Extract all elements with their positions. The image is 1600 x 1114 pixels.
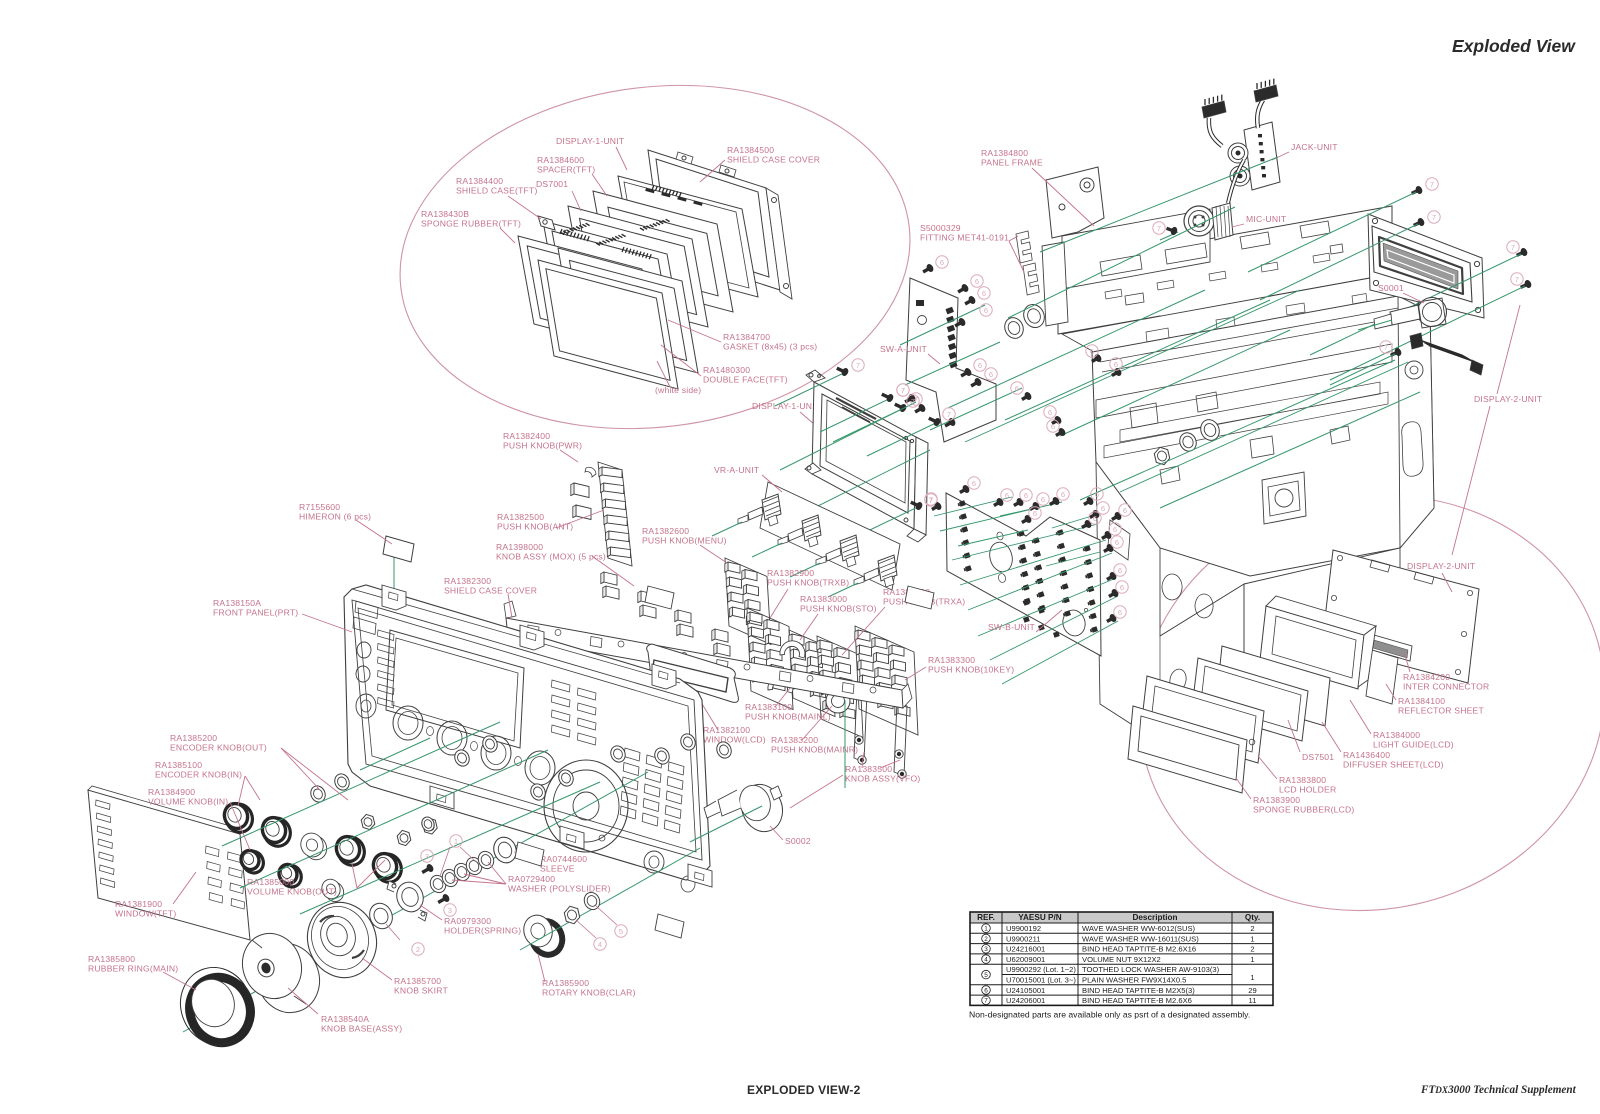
svg-text:6: 6: [972, 479, 976, 488]
svg-text:ROTARY KNOB(CLAR): ROTARY KNOB(CLAR): [542, 988, 636, 998]
svg-text:HIMERON (6 pcs): HIMERON (6 pcs): [299, 512, 371, 522]
svg-text:RA1383900: RA1383900: [1253, 795, 1300, 805]
svg-text:6: 6: [1051, 422, 1055, 431]
svg-text:RA138430B: RA138430B: [421, 209, 469, 219]
svg-text:7: 7: [1432, 213, 1436, 222]
svg-text:FRONT PANEL(PRT): FRONT PANEL(PRT): [213, 608, 298, 618]
svg-text:3: 3: [448, 906, 452, 915]
svg-text:R7155600: R7155600: [299, 502, 340, 512]
svg-text:5: 5: [984, 972, 988, 979]
svg-text:RA1384100: RA1384100: [1398, 696, 1445, 706]
svg-text:7: 7: [1157, 224, 1161, 233]
svg-text:VOLUME NUT 9X12X2: VOLUME NUT 9X12X2: [1082, 955, 1161, 964]
svg-text:U9900292 (Lot. 1~2): U9900292 (Lot. 1~2): [1006, 965, 1076, 974]
svg-text:WAVE WASHER WW-16011(SUS): WAVE WASHER WW-16011(SUS): [1082, 934, 1199, 943]
svg-text:WINDOW(TFT): WINDOW(TFT): [115, 909, 176, 919]
svg-text:RA0979300: RA0979300: [444, 916, 491, 926]
svg-text:6: 6: [975, 277, 979, 286]
svg-text:FTDX3000 Technical Supplement: FTDX3000 Technical Supplement: [1420, 1084, 1577, 1096]
svg-text:DOUBLE FACE(TFT): DOUBLE FACE(TFT): [703, 375, 788, 385]
svg-text:7: 7: [911, 397, 915, 406]
svg-text:RA1382600: RA1382600: [642, 526, 689, 536]
svg-text:U24105001: U24105001: [1006, 986, 1045, 995]
svg-text:6: 6: [1118, 608, 1122, 617]
svg-text:RA138540A: RA138540A: [321, 1014, 369, 1024]
svg-text:HOLDER(SPRING): HOLDER(SPRING): [444, 926, 521, 936]
svg-text:2: 2: [1250, 945, 1254, 954]
svg-text:29: 29: [1248, 986, 1256, 995]
svg-text:RA0729400: RA0729400: [508, 874, 555, 884]
svg-text:PUSH KNOB(PWR): PUSH KNOB(PWR): [503, 441, 582, 451]
svg-text:2: 2: [416, 945, 420, 954]
svg-text:1: 1: [984, 926, 988, 933]
svg-text:3: 3: [425, 852, 429, 861]
svg-text:4: 4: [984, 957, 988, 964]
svg-text:U9900211: U9900211: [1006, 934, 1040, 943]
svg-text:BIND HEAD TAPTITE-B M2.6X16: BIND HEAD TAPTITE-B M2.6X16: [1082, 945, 1196, 954]
svg-text:7: 7: [1384, 343, 1388, 352]
svg-text:U9900192: U9900192: [1006, 924, 1041, 933]
svg-text:EXPLODED VIEW-2: EXPLODED VIEW-2: [747, 1083, 861, 1097]
svg-text:DS7501: DS7501: [1302, 752, 1334, 762]
svg-text:FITTING MET41-0191: FITTING MET41-0191: [920, 233, 1009, 243]
svg-text:MIC-UNIT: MIC-UNIT: [1246, 214, 1287, 224]
svg-text:S0001: S0001: [1378, 283, 1404, 293]
svg-text:(white side): (white side): [655, 385, 701, 395]
svg-text:U24216001: U24216001: [1006, 945, 1045, 954]
svg-text:ENCODER KNOB(IN): ENCODER KNOB(IN): [155, 770, 242, 780]
svg-text:RA1381900: RA1381900: [115, 899, 162, 909]
svg-text:RUBBER RING(MAIN): RUBBER RING(MAIN): [88, 964, 178, 974]
svg-text:6: 6: [1113, 525, 1117, 534]
svg-text:KNOB ASSY (MOX) (5 pcs): KNOB ASSY (MOX) (5 pcs): [496, 552, 606, 562]
svg-text:1: 1: [1250, 973, 1254, 982]
svg-text:VOLUME KNOB(IN): VOLUME KNOB(IN): [148, 797, 228, 807]
svg-text:REFLECTOR SHEET: REFLECTOR SHEET: [1398, 706, 1484, 716]
svg-text:TOOTHED LOCK WASHER AW-9103(3): TOOTHED LOCK WASHER AW-9103(3): [1082, 965, 1220, 974]
svg-text:SHIELD CASE COVER: SHIELD CASE COVER: [444, 586, 537, 596]
svg-text:7: 7: [1515, 275, 1519, 284]
svg-text:LCD HOLDER: LCD HOLDER: [1279, 785, 1336, 795]
svg-text:7: 7: [901, 386, 905, 395]
svg-text:RA1384500: RA1384500: [727, 145, 774, 155]
svg-text:VR-A-UNIT: VR-A-UNIT: [714, 465, 760, 475]
svg-text:3: 3: [984, 946, 988, 953]
svg-text:6: 6: [1118, 566, 1122, 575]
svg-text:RA1383800: RA1383800: [1279, 775, 1326, 785]
svg-text:JACK-UNIT: JACK-UNIT: [1291, 142, 1338, 152]
svg-text:6: 6: [1090, 347, 1094, 356]
svg-text:RA1480300: RA1480300: [703, 365, 750, 375]
svg-text:SW-A-UNIT: SW-A-UNIT: [880, 344, 928, 354]
svg-text:RA1436400: RA1436400: [1343, 750, 1390, 760]
svg-text:GASKET (8x45) (3 pcs): GASKET (8x45) (3 pcs): [723, 342, 817, 352]
svg-text:DISPLAY-1-UNIT: DISPLAY-1-UNIT: [556, 136, 625, 146]
svg-text:Exploded View: Exploded View: [1452, 36, 1576, 56]
svg-text:Qty.: Qty.: [1245, 913, 1260, 922]
svg-text:6: 6: [1015, 384, 1019, 393]
svg-text:BIND HEAD TAPTITE-B M2.6X6: BIND HEAD TAPTITE-B M2.6X6: [1082, 996, 1192, 1005]
svg-text:6: 6: [982, 289, 986, 298]
svg-text:RA1384700: RA1384700: [723, 332, 770, 342]
svg-text:6: 6: [1115, 538, 1119, 547]
svg-text:6: 6: [1024, 491, 1028, 500]
svg-text:6: 6: [1048, 408, 1052, 417]
svg-text:RA0744600: RA0744600: [540, 854, 587, 864]
svg-text:U24206001: U24206001: [1006, 996, 1045, 1005]
svg-text:RA1382100: RA1382100: [703, 725, 750, 735]
svg-text:6: 6: [984, 306, 988, 315]
svg-text:6: 6: [989, 370, 993, 379]
svg-text:6: 6: [1095, 490, 1099, 499]
svg-text:6: 6: [984, 987, 988, 994]
svg-text:KNOB ASSY(VFO): KNOB ASSY(VFO): [845, 774, 920, 784]
svg-text:BIND HEAD TAPTITE-B M2X5(3): BIND HEAD TAPTITE-B M2X5(3): [1082, 986, 1195, 995]
svg-text:DISPLAY-2-UNIT: DISPLAY-2-UNIT: [1407, 561, 1476, 571]
svg-text:SPONGE RUBBER(LCD): SPONGE RUBBER(LCD): [1253, 805, 1355, 815]
svg-text:DISPLAY-2-UNIT: DISPLAY-2-UNIT: [1474, 394, 1543, 404]
svg-text:6: 6: [1033, 509, 1037, 518]
svg-text:6: 6: [1114, 360, 1118, 369]
svg-text:RA138150A: RA138150A: [213, 598, 261, 608]
svg-text:7: 7: [929, 495, 933, 504]
svg-text:6: 6: [978, 361, 982, 370]
svg-text:DS7001: DS7001: [536, 179, 568, 189]
svg-text:SHIELD CASE(TFT): SHIELD CASE(TFT): [456, 186, 538, 196]
svg-text:WASHER (POLYSLIDER): WASHER (POLYSLIDER): [508, 884, 611, 894]
svg-text:U62009001: U62009001: [1006, 955, 1045, 964]
svg-text:RA1383100: RA1383100: [745, 702, 792, 712]
svg-text:SPONGE RUBBER(TFT): SPONGE RUBBER(TFT): [421, 219, 521, 229]
svg-text:PUSH KNOB(10KEY): PUSH KNOB(10KEY): [928, 665, 1014, 675]
svg-text:KNOB BASE(ASSY): KNOB BASE(ASSY): [321, 1024, 402, 1034]
svg-text:2: 2: [984, 936, 988, 943]
svg-text:6: 6: [1120, 583, 1124, 592]
svg-text:PLAIN WASHER FW9X14X0.5: PLAIN WASHER FW9X14X0.5: [1082, 976, 1186, 985]
svg-text:7: 7: [947, 410, 951, 419]
svg-text:PUSH KNOB(ANT): PUSH KNOB(ANT): [497, 522, 573, 532]
svg-text:LIGHT GUIDE(LCD): LIGHT GUIDE(LCD): [1373, 740, 1454, 750]
svg-text:PUSH KNOB(MENU): PUSH KNOB(MENU): [642, 536, 727, 546]
svg-text:11: 11: [1249, 996, 1257, 1005]
svg-text:Description: Description: [1132, 913, 1177, 922]
svg-text:PUSH KNOB(TRXB): PUSH KNOB(TRXB): [767, 578, 849, 588]
svg-text:6: 6: [1041, 495, 1045, 504]
svg-text:S5000329: S5000329: [920, 223, 961, 233]
svg-text:RA1382500: RA1382500: [497, 512, 544, 522]
svg-text:PUSH KNOB(STO): PUSH KNOB(STO): [800, 604, 877, 614]
svg-text:YAESU P/N: YAESU P/N: [1018, 913, 1061, 922]
svg-text:7: 7: [984, 998, 988, 1005]
svg-text:PANEL FRAME: PANEL FRAME: [981, 158, 1043, 168]
svg-text:ENCODER KNOB(OUT): ENCODER KNOB(OUT): [170, 743, 267, 753]
svg-text:6: 6: [1101, 504, 1105, 513]
svg-text:SPACER(TFT): SPACER(TFT): [537, 165, 595, 175]
svg-text:DISPLAY-1-UNIT: DISPLAY-1-UNIT: [752, 401, 821, 411]
svg-text:RA1384900: RA1384900: [148, 787, 195, 797]
svg-text:1: 1: [1250, 955, 1254, 964]
svg-text:RA1398000: RA1398000: [496, 542, 543, 552]
svg-text:RA1382900: RA1382900: [767, 568, 814, 578]
svg-text:2: 2: [1250, 924, 1254, 933]
svg-text:RA1384200: RA1384200: [1403, 672, 1450, 682]
svg-text:RA1382300: RA1382300: [444, 576, 491, 586]
svg-text:KNOB SKIRT: KNOB SKIRT: [394, 986, 448, 996]
svg-text:S0002: S0002: [785, 836, 811, 846]
svg-text:SHIELD CASE COVER: SHIELD CASE COVER: [727, 155, 820, 165]
svg-text:7: 7: [856, 361, 860, 370]
svg-text:RA1384400: RA1384400: [456, 176, 503, 186]
svg-text:6: 6: [940, 258, 944, 267]
svg-text:PUSH KNOB(MAINL): PUSH KNOB(MAINL): [745, 712, 831, 722]
svg-text:RA1382400: RA1382400: [503, 431, 550, 441]
svg-text:WAVE WASHER WW-6012(SUS): WAVE WASHER WW-6012(SUS): [1082, 924, 1196, 933]
svg-text:VOLUME KNOB(OUT): VOLUME KNOB(OUT): [247, 887, 337, 897]
svg-text:5: 5: [619, 927, 623, 936]
svg-text:RA1385900: RA1385900: [542, 978, 589, 988]
svg-text:SLEEVE: SLEEVE: [540, 864, 575, 874]
svg-text:RA1385800: RA1385800: [88, 954, 135, 964]
svg-text:RA1385200: RA1385200: [170, 733, 217, 743]
svg-text:RA1385000: RA1385000: [247, 877, 294, 887]
svg-text:6: 6: [1061, 490, 1065, 499]
svg-text:U70015001 (Lot. 3~): U70015001 (Lot. 3~): [1006, 976, 1076, 985]
svg-text:7: 7: [1511, 243, 1515, 252]
svg-text:DIFFUSER SHEET(LCD): DIFFUSER SHEET(LCD): [1343, 760, 1444, 770]
svg-text:RA1383200: RA1383200: [771, 735, 818, 745]
svg-text:RA1383000: RA1383000: [800, 594, 847, 604]
svg-text:RA1384600: RA1384600: [537, 155, 584, 165]
svg-text:RA1385700: RA1385700: [394, 976, 441, 986]
svg-text:REF.: REF.: [977, 913, 995, 922]
svg-text:4: 4: [598, 940, 602, 949]
svg-text:1: 1: [454, 837, 458, 846]
svg-text:6: 6: [1005, 491, 1009, 500]
svg-text:RA1383300: RA1383300: [928, 655, 975, 665]
svg-text:INTER CONNECTOR: INTER CONNECTOR: [1403, 682, 1489, 692]
svg-text:RA1385100: RA1385100: [155, 760, 202, 770]
svg-text:WINDOW(LCD): WINDOW(LCD): [703, 735, 766, 745]
svg-text:1: 1: [1250, 934, 1254, 943]
svg-text:Non-designated parts are avail: Non-designated parts are available only …: [969, 1009, 1250, 1019]
svg-text:7: 7: [1430, 180, 1434, 189]
svg-text:6: 6: [1123, 506, 1127, 515]
svg-text:RA1384000: RA1384000: [1373, 730, 1420, 740]
svg-text:6: 6: [1093, 514, 1097, 523]
svg-text:RA1384800: RA1384800: [981, 148, 1028, 158]
svg-text:SW-B-UNIT: SW-B-UNIT: [988, 622, 1036, 632]
